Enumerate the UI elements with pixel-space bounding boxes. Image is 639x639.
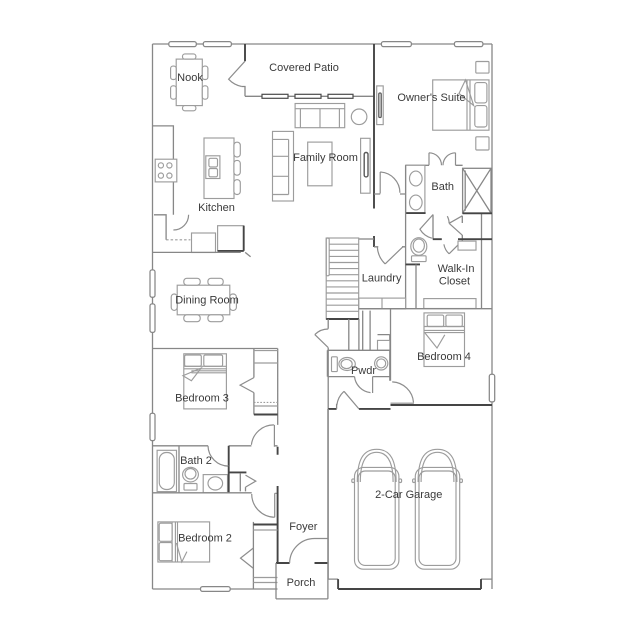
svg-text:2-Car Garage: 2-Car Garage [375, 489, 442, 501]
svg-text:Bath 2: Bath 2 [180, 455, 212, 467]
svg-text:Laundry: Laundry [362, 273, 402, 285]
svg-text:Kitchen: Kitchen [198, 202, 235, 214]
svg-text:Bedroom 4: Bedroom 4 [417, 351, 471, 363]
svg-text:Dining Room: Dining Room [175, 295, 239, 307]
svg-text:Owner's Suite: Owner's Suite [397, 92, 465, 104]
svg-text:Bedroom 3: Bedroom 3 [175, 393, 229, 405]
svg-text:Closet: Closet [439, 276, 470, 288]
svg-text:Family Room: Family Room [293, 152, 358, 164]
svg-text:Pwdr: Pwdr [351, 365, 376, 377]
svg-text:Covered Patio: Covered Patio [269, 62, 339, 74]
svg-text:Bath: Bath [431, 181, 454, 193]
svg-text:Nook: Nook [177, 72, 203, 84]
svg-text:Porch: Porch [287, 577, 316, 589]
svg-text:Bedroom 2: Bedroom 2 [178, 533, 232, 545]
svg-text:Foyer: Foyer [289, 521, 317, 533]
svg-text:Walk-In: Walk-In [438, 263, 475, 275]
